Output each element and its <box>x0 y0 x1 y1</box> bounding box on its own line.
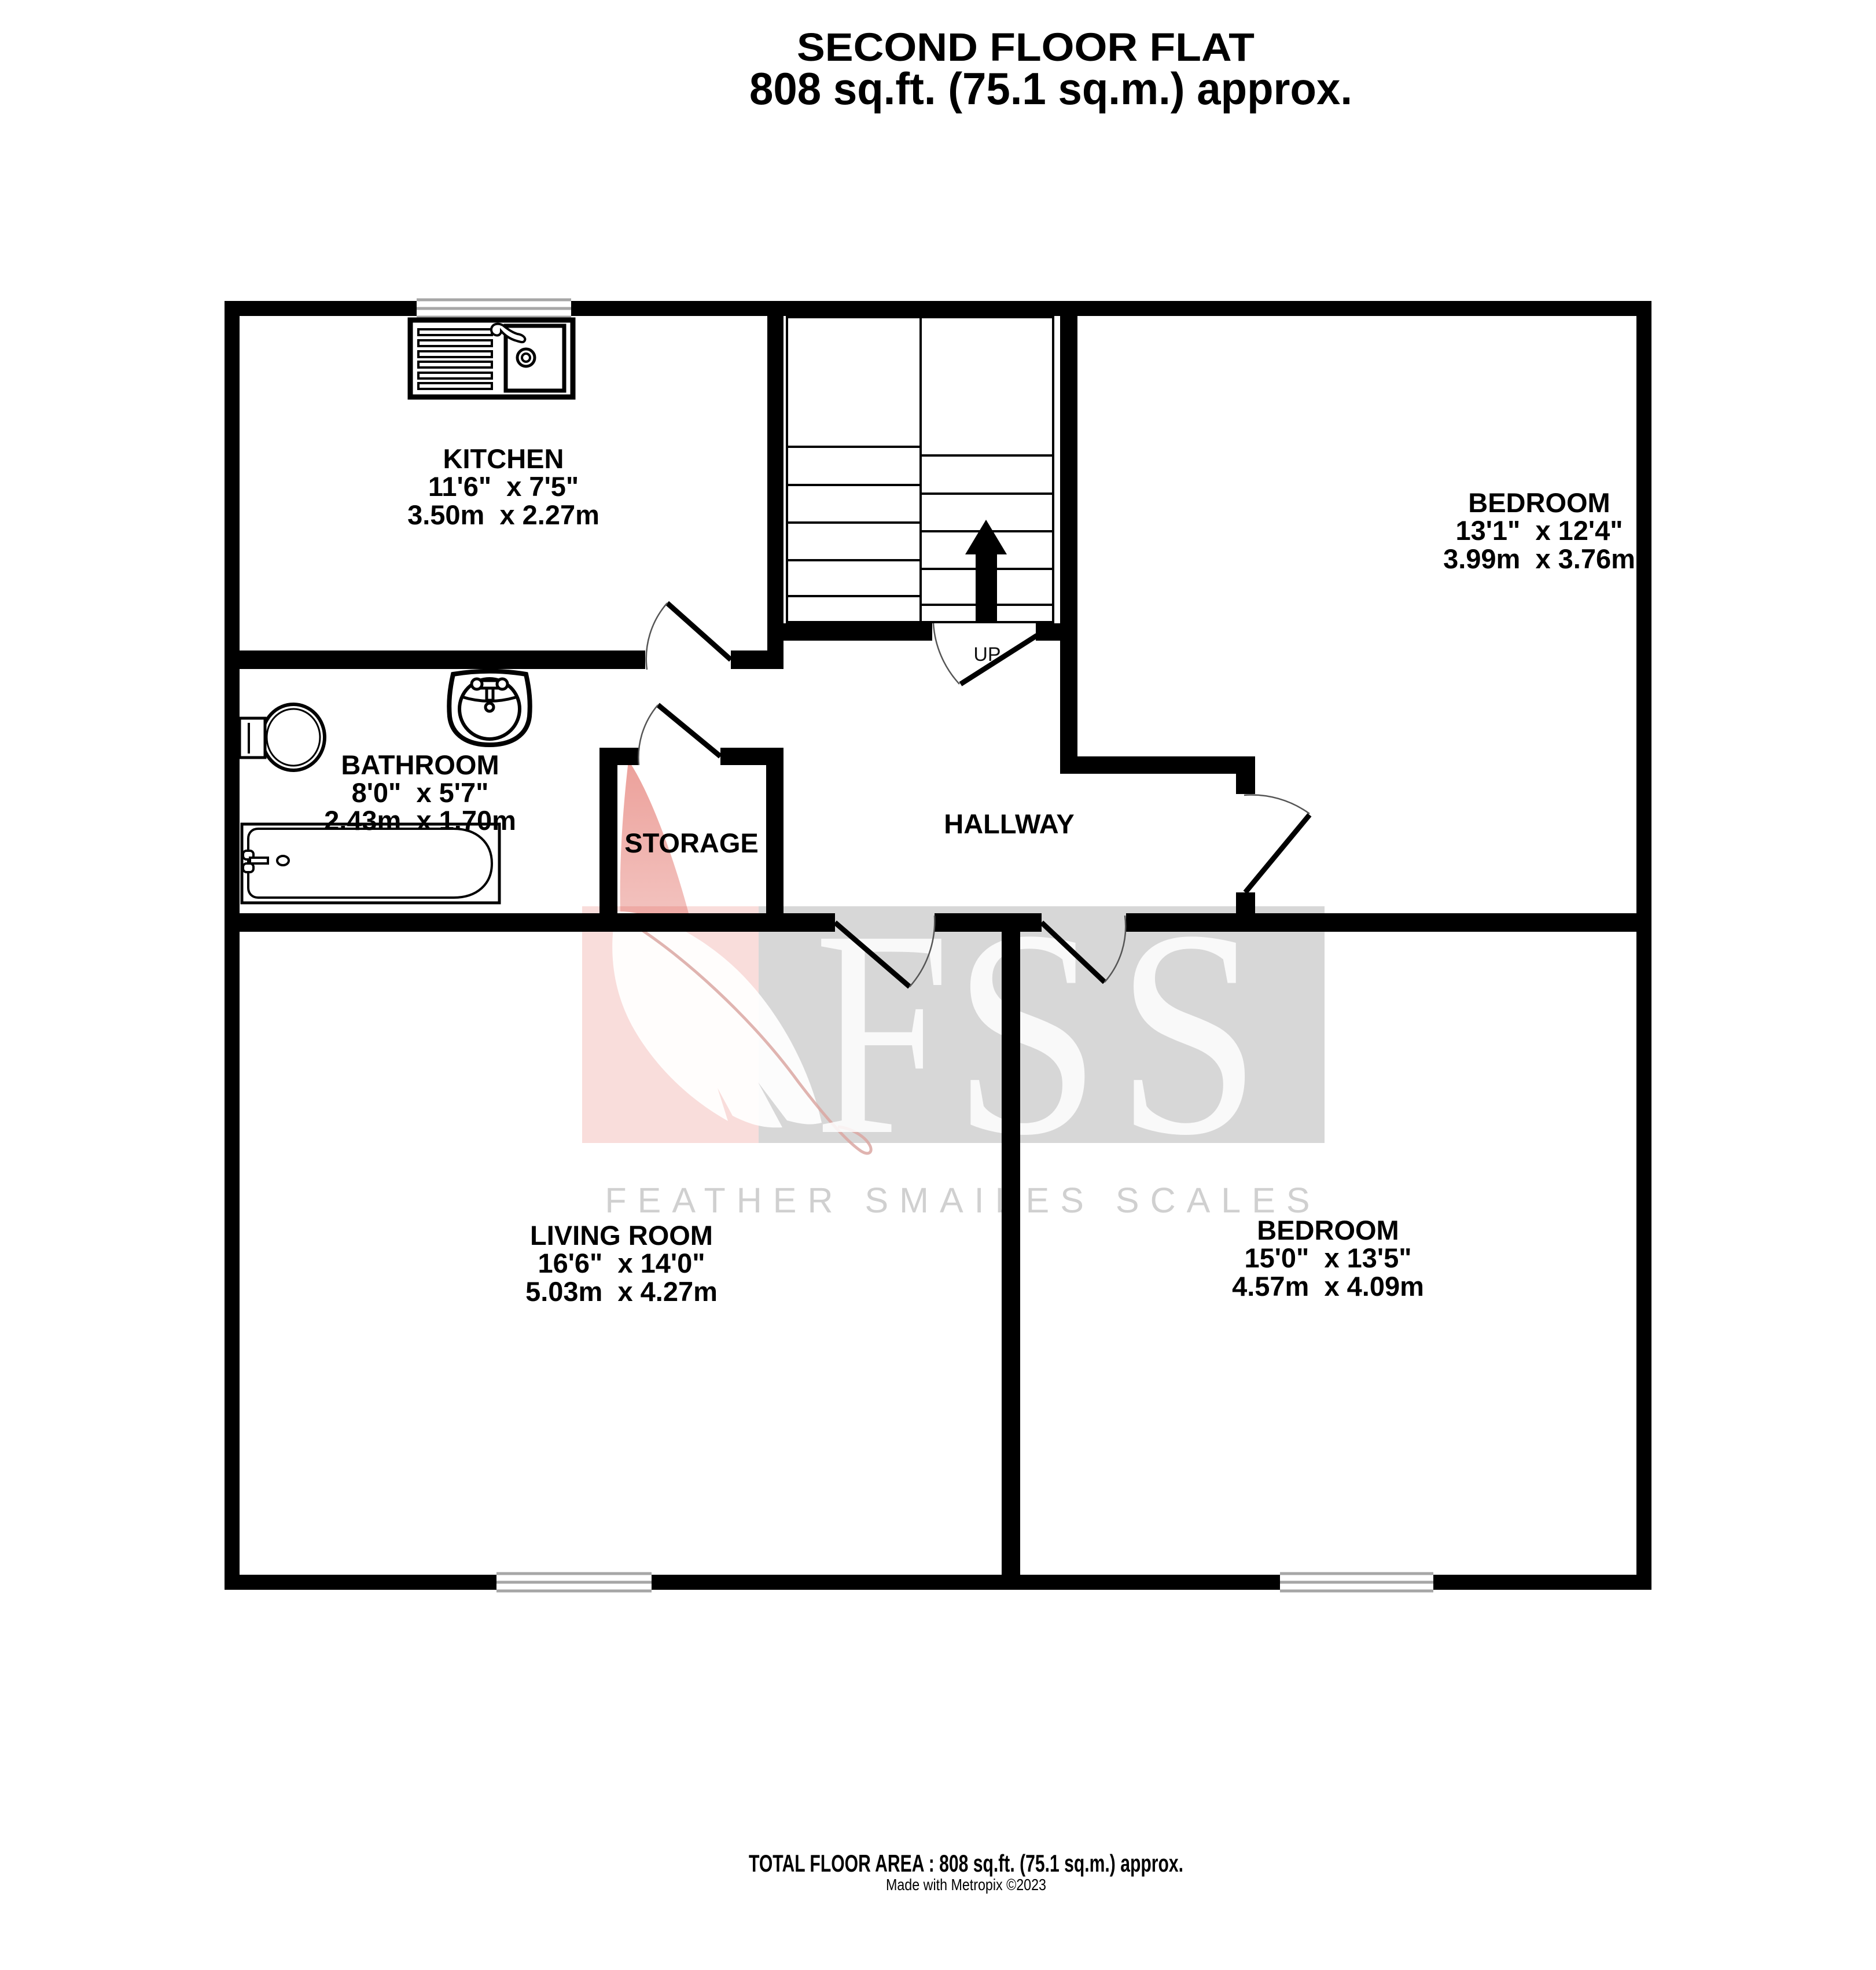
svg-text:16'6" x 14'0": 16'6" x 14'0" <box>538 1248 705 1278</box>
svg-text:3.50m x 2.27m: 3.50m x 2.27m <box>407 499 599 530</box>
svg-text:13'1" x 12'4": 13'1" x 12'4" <box>1455 515 1623 546</box>
svg-text:15'0" x 13'5": 15'0" x 13'5" <box>1244 1243 1411 1273</box>
svg-text:HALLWAY: HALLWAY <box>944 808 1074 839</box>
svg-text:LIVING ROOM: LIVING ROOM <box>530 1220 713 1251</box>
svg-text:FEATHER SMAILES SCALES: FEATHER SMAILES SCALES <box>605 1181 1320 1220</box>
svg-text:4.57m x 4.09m: 4.57m x 4.09m <box>1232 1271 1424 1302</box>
svg-text:3.99m x 3.76m: 3.99m x 3.76m <box>1443 543 1635 574</box>
svg-text:808 sq.ft. (75.1 sq.m.) approx: 808 sq.ft. (75.1 sq.m.) approx. <box>749 63 1352 114</box>
svg-text:BEDROOM: BEDROOM <box>1468 487 1610 518</box>
svg-text:KITCHEN: KITCHEN <box>443 443 564 474</box>
svg-text:8'0" x 5'7": 8'0" x 5'7" <box>352 777 489 808</box>
svg-text:Made with Metropix ©2023: Made with Metropix ©2023 <box>886 1876 1046 1894</box>
svg-text:TOTAL FLOOR AREA : 808 sq.ft.: TOTAL FLOOR AREA : 808 sq.ft. (75.1 sq.m… <box>749 1850 1183 1877</box>
svg-text:2.43m x 1.70m: 2.43m x 1.70m <box>324 805 516 836</box>
svg-text:5.03m x 4.27m: 5.03m x 4.27m <box>525 1276 718 1307</box>
svg-text:BATHROOM: BATHROOM <box>341 749 499 780</box>
svg-text:BEDROOM: BEDROOM <box>1257 1215 1399 1245</box>
svg-text:STORAGE: STORAGE <box>624 828 759 858</box>
svg-text:11'6" x 7'5": 11'6" x 7'5" <box>428 471 579 502</box>
